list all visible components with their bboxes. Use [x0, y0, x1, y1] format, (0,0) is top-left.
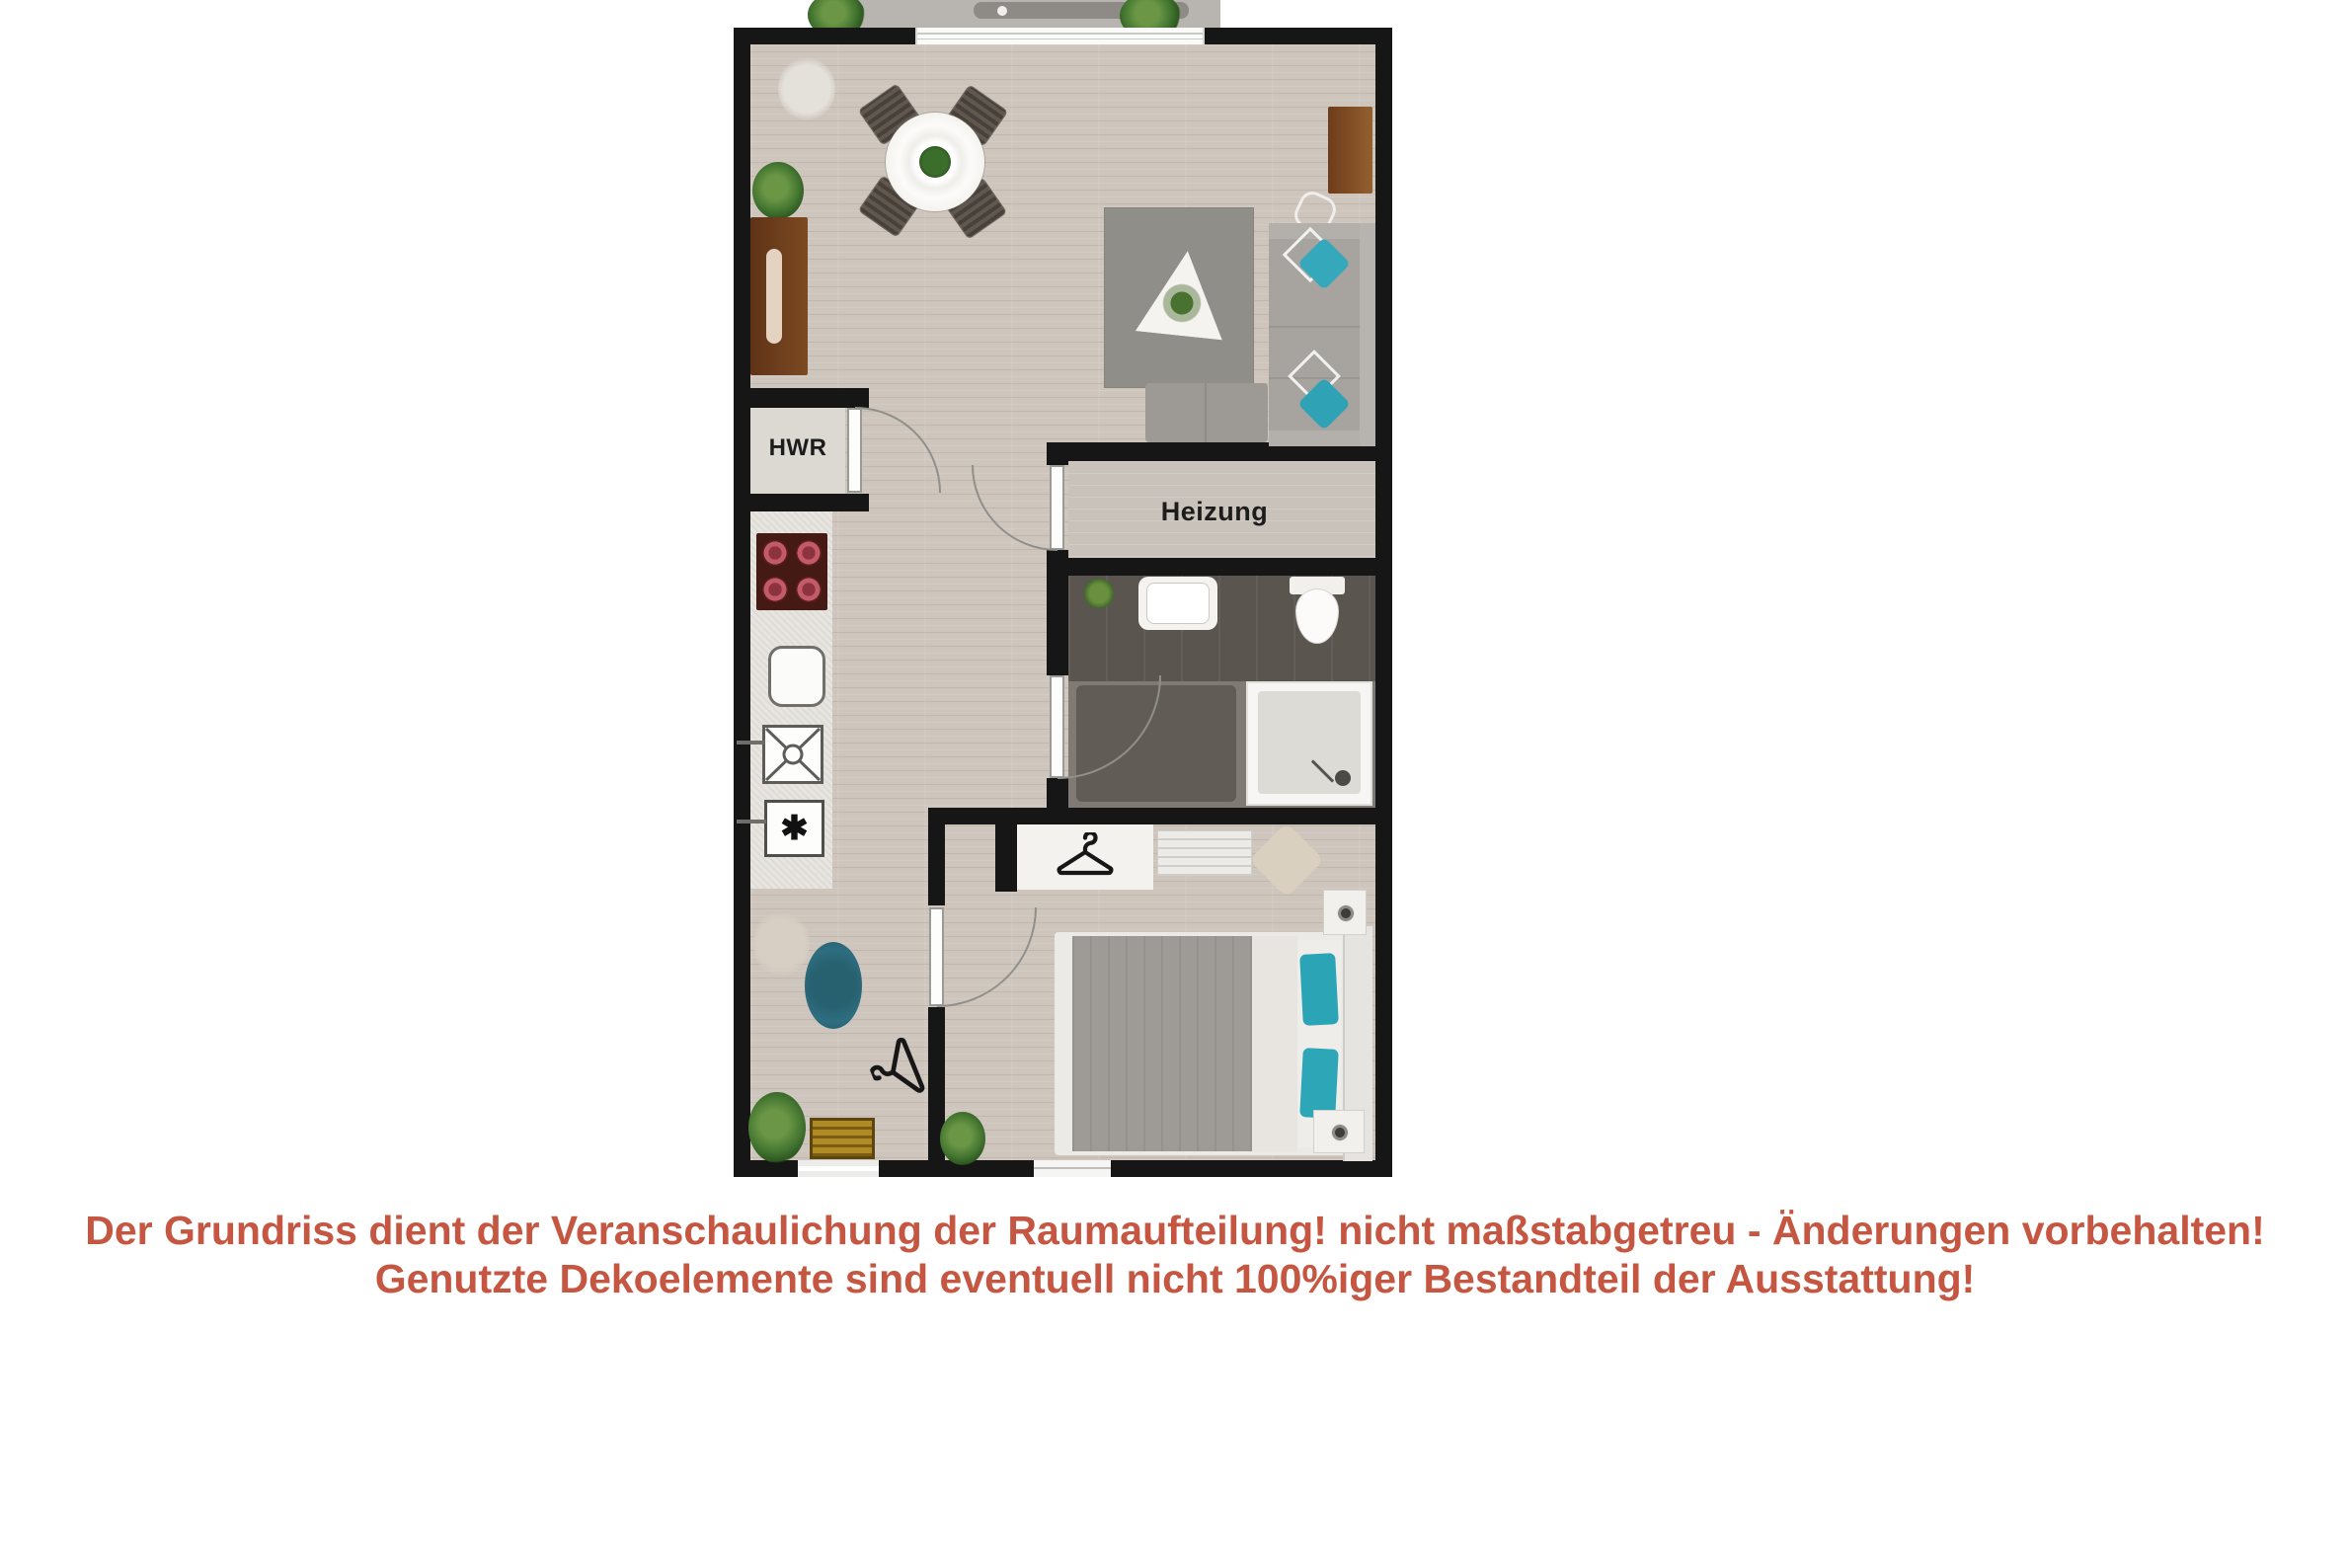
hwr-wall-top — [734, 388, 869, 408]
wall-right — [1375, 28, 1392, 1177]
wall-bottom-c — [1111, 1160, 1392, 1177]
tech-wall-left-a — [1047, 442, 1068, 465]
hanger-icon — [1053, 832, 1118, 882]
wall-top-left — [734, 28, 915, 44]
wall-top-right — [1205, 28, 1392, 44]
washer-cross-icon — [762, 725, 823, 784]
coffee-table-plant — [1157, 278, 1207, 328]
bed-pillow-teal — [1299, 1048, 1339, 1119]
hwr-room-label: HWR — [754, 434, 841, 462]
balcony-window — [915, 28, 1205, 44]
tv-cabinet — [1328, 107, 1372, 194]
pipe-connector — [737, 741, 764, 745]
disclaimer-line-2: Genutzte Dekoelemente sind eventuell nic… — [0, 1255, 2350, 1303]
plant-icon — [752, 162, 804, 219]
hwr-wall-bottom — [734, 494, 869, 511]
bedroom-wall-top — [928, 808, 1392, 824]
plant-icon — [748, 1092, 806, 1163]
closet-side-wall — [995, 824, 1017, 892]
heizung-door — [1050, 465, 1064, 550]
pipe-connector — [737, 820, 766, 823]
nightstand — [1313, 1110, 1365, 1153]
shower — [1246, 681, 1372, 806]
bath-vanity — [1138, 577, 1217, 630]
bathroom-door — [1050, 675, 1064, 778]
bed-pillow-teal — [1299, 953, 1339, 1026]
hwr-door — [847, 408, 862, 493]
wall-bottom-a — [734, 1160, 798, 1177]
bath-mat — [1076, 685, 1236, 802]
closet — [1017, 824, 1153, 890]
heizung-room-label: Heizung — [1116, 497, 1313, 527]
plant-icon — [940, 1112, 985, 1165]
hall-rug-blue — [805, 942, 862, 1029]
heizung-wall-bottom — [1047, 558, 1392, 576]
hall-rug-beige — [752, 912, 810, 976]
kitchen-sink — [768, 646, 825, 707]
bath-plant — [1084, 579, 1114, 608]
doormat — [810, 1118, 875, 1159]
oven-star-icon: ✱ — [764, 800, 824, 857]
sideboard — [750, 217, 808, 375]
entrance-door — [798, 1160, 879, 1177]
wall-left — [734, 28, 750, 1177]
stove-burners-icon — [756, 533, 827, 610]
bedroom-window — [1034, 1160, 1111, 1177]
nightstand — [1323, 890, 1367, 935]
floorplan-page: HWR Heizung ✱ — [0, 0, 2350, 1568]
bedroom-divider-a — [928, 824, 945, 905]
dresser — [1157, 830, 1252, 876]
ceiling-lamp — [778, 57, 835, 120]
ottoman — [1145, 383, 1268, 442]
balcony-pot-left — [997, 6, 1007, 16]
disclaimer-line-1: Der Grundriss dient der Veranschaulichun… — [0, 1207, 2350, 1255]
table-plant — [919, 146, 951, 178]
bedroom-door — [929, 907, 944, 1006]
disclaimer-text: Der Grundriss dient der Veranschaulichun… — [0, 1207, 2350, 1303]
